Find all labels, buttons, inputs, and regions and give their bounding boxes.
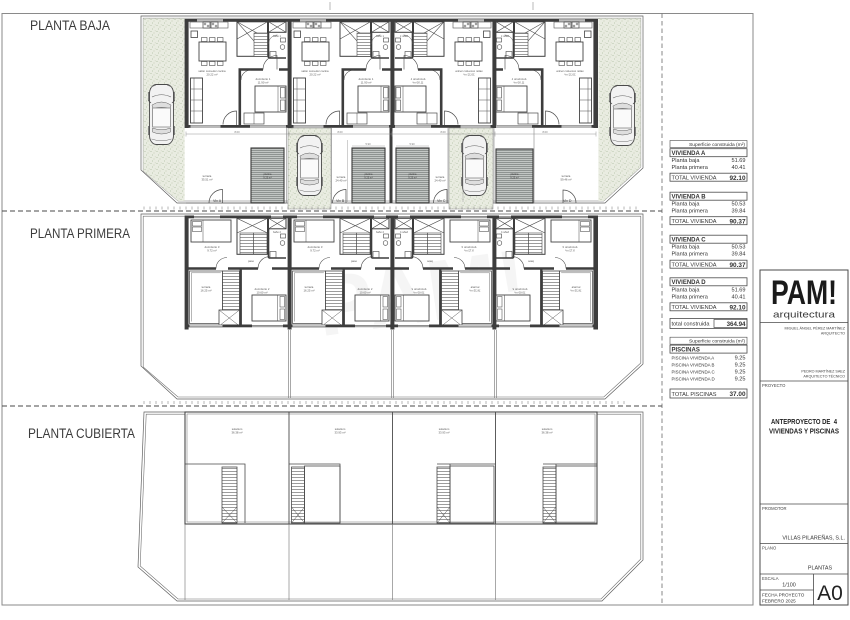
svg-text:ESCALA: ESCALA bbox=[762, 576, 779, 581]
svg-text:9.25 m²: 9.25 m² bbox=[408, 176, 417, 179]
svg-text:PEDRO MARTÍNEZ SAEZ: PEDRO MARTÍNEZ SAEZ bbox=[801, 370, 845, 374]
svg-text:51.69: 51.69 bbox=[732, 287, 746, 293]
svg-text:364.94: 364.94 bbox=[727, 321, 746, 328]
svg-text:Viv B: Viv B bbox=[336, 199, 345, 203]
svg-text:PISCINA VIVIENDA D: PISCINA VIVIENDA D bbox=[672, 377, 715, 382]
svg-text:8.00: 8.00 bbox=[440, 130, 446, 134]
svg-text:8.00: 8.00 bbox=[234, 130, 240, 134]
svg-text:Superficie construida (m²): Superficie construida (m²) bbox=[689, 339, 745, 345]
svg-text:40.41: 40.41 bbox=[732, 165, 746, 171]
svg-text:VIVIENDA A: VIVIENDA A bbox=[672, 151, 707, 157]
svg-text:PLANO: PLANO bbox=[762, 545, 777, 550]
svg-text:PAM!: PAM! bbox=[771, 274, 837, 312]
svg-text:9.25: 9.25 bbox=[735, 370, 746, 376]
svg-text:40.41: 40.41 bbox=[732, 294, 746, 300]
svg-text:59.46 m²: 59.46 m² bbox=[560, 177, 571, 181]
svg-text:A0: A0 bbox=[817, 582, 843, 605]
svg-text:Planta primera: Planta primera bbox=[672, 252, 709, 258]
svg-text:37.00: 37.00 bbox=[730, 391, 746, 398]
svg-text:90.37: 90.37 bbox=[730, 262, 746, 269]
svg-text:9.25: 9.25 bbox=[735, 377, 746, 383]
svg-text:PISCINA VIVIENDA B: PISCINA VIVIENDA B bbox=[672, 363, 715, 368]
svg-text:8.00: 8.00 bbox=[337, 130, 343, 134]
svg-text:35.51 m²: 35.51 m² bbox=[201, 177, 212, 181]
svg-text:51.69: 51.69 bbox=[732, 158, 746, 164]
svg-text:VILLAS PILAREÑAS, S.L.: VILLAS PILAREÑAS, S.L. bbox=[782, 535, 845, 542]
svg-text:Viv D: Viv D bbox=[563, 199, 572, 203]
svg-text:90.37: 90.37 bbox=[730, 218, 746, 225]
svg-text:ARQUITECTO: ARQUITECTO bbox=[821, 332, 845, 336]
svg-text:Planta primera: Planta primera bbox=[672, 165, 709, 171]
svg-text:39.84: 39.84 bbox=[732, 209, 746, 215]
svg-text:5.90: 5.90 bbox=[409, 142, 415, 146]
svg-text:Planta baja: Planta baja bbox=[672, 202, 701, 208]
svg-text:92.10: 92.10 bbox=[730, 304, 746, 311]
svg-text:Planta baja: Planta baja bbox=[672, 245, 701, 251]
svg-text:9.25 m²: 9.25 m² bbox=[263, 176, 272, 179]
svg-text:MIGUEL ÁNGEL PÉREZ MARTÍNEZ: MIGUEL ÁNGEL PÉREZ MARTÍNEZ bbox=[784, 326, 845, 331]
svg-text:Superficie construida (m²): Superficie construida (m²) bbox=[689, 142, 745, 148]
svg-text:PLANTA PRIMERA: PLANTA PRIMERA bbox=[30, 226, 130, 241]
svg-text:PLANTA BAJA: PLANTA BAJA bbox=[30, 18, 110, 33]
svg-text:24.40 m²: 24.40 m² bbox=[434, 178, 445, 182]
svg-text:PISCINA VIVIENDA C: PISCINA VIVIENDA C bbox=[672, 370, 715, 375]
svg-text:Planta baja: Planta baja bbox=[672, 158, 701, 164]
svg-text:36.38 m²: 36.38 m² bbox=[231, 430, 242, 434]
svg-text:FECHA PROYECTO: FECHA PROYECTO bbox=[762, 592, 805, 597]
svg-text:9.25: 9.25 bbox=[735, 363, 746, 369]
svg-text:8.00: 8.00 bbox=[542, 130, 548, 134]
svg-text:Planta primera: Planta primera bbox=[672, 294, 709, 300]
svg-text:9.25: 9.25 bbox=[735, 356, 746, 362]
svg-text:PISCINA VIVIENDA A: PISCINA VIVIENDA A bbox=[672, 356, 715, 361]
svg-text:36.38 m²: 36.38 m² bbox=[541, 430, 552, 434]
svg-text:1/100: 1/100 bbox=[782, 583, 796, 589]
svg-text:TOTAL VIVIENDA: TOTAL VIVIENDA bbox=[672, 263, 717, 269]
svg-text:VIVIENDAS Y PISCINAS: VIVIENDAS Y PISCINAS bbox=[769, 427, 839, 436]
svg-text:24.40 m²: 24.40 m² bbox=[335, 178, 346, 182]
svg-text:total construida: total construida bbox=[672, 322, 711, 328]
svg-text:PLANTAS: PLANTAS bbox=[808, 566, 833, 572]
svg-text:VIVIENDA D: VIVIENDA D bbox=[672, 280, 707, 286]
svg-text:33.93 m²: 33.93 m² bbox=[334, 430, 345, 434]
svg-text:5.90: 5.90 bbox=[365, 142, 371, 146]
svg-text:PLANTA CUBIERTA: PLANTA CUBIERTA bbox=[28, 426, 135, 441]
svg-text:9.25 m²: 9.25 m² bbox=[510, 176, 519, 179]
svg-text:Viv C: Viv C bbox=[437, 199, 446, 203]
svg-text:TOTAL VIVIENDA: TOTAL VIVIENDA bbox=[672, 219, 717, 225]
svg-text:Planta primera: Planta primera bbox=[672, 209, 709, 215]
svg-text:VIVIENDA C: VIVIENDA C bbox=[672, 238, 707, 244]
svg-text:92.10: 92.10 bbox=[730, 175, 746, 182]
svg-text:TOTAL VIVIENDA: TOTAL VIVIENDA bbox=[672, 305, 717, 311]
svg-text:33.93 m²: 33.93 m² bbox=[438, 430, 449, 434]
svg-text:VIVIENDA B: VIVIENDA B bbox=[672, 195, 707, 201]
svg-text:9.25 m²: 9.25 m² bbox=[364, 176, 373, 179]
svg-text:50.53: 50.53 bbox=[732, 202, 746, 208]
svg-text:50.53: 50.53 bbox=[732, 245, 746, 251]
svg-text:39.84: 39.84 bbox=[732, 252, 746, 258]
svg-text:ARQUITECTO TÉCNICO: ARQUITECTO TÉCNICO bbox=[803, 374, 845, 379]
svg-text:PROMOTOR: PROMOTOR bbox=[762, 506, 787, 511]
svg-text:arquitectura: arquitectura bbox=[773, 310, 836, 321]
svg-text:ANTEPROYECTO DE 4: ANTEPROYECTO DE 4 bbox=[771, 417, 838, 426]
svg-text:FEBRERO 2025: FEBRERO 2025 bbox=[762, 598, 796, 603]
svg-text:Viv A: Viv A bbox=[213, 199, 222, 203]
svg-text:PROYECTO: PROYECTO bbox=[762, 383, 786, 388]
svg-text:TOTAL VIVIENDA: TOTAL VIVIENDA bbox=[672, 176, 717, 182]
svg-text:TOTAL PISCINAS: TOTAL PISCINAS bbox=[672, 392, 717, 398]
svg-text:PISCINAS: PISCINAS bbox=[672, 347, 700, 353]
svg-text:Planta baja: Planta baja bbox=[672, 287, 701, 293]
